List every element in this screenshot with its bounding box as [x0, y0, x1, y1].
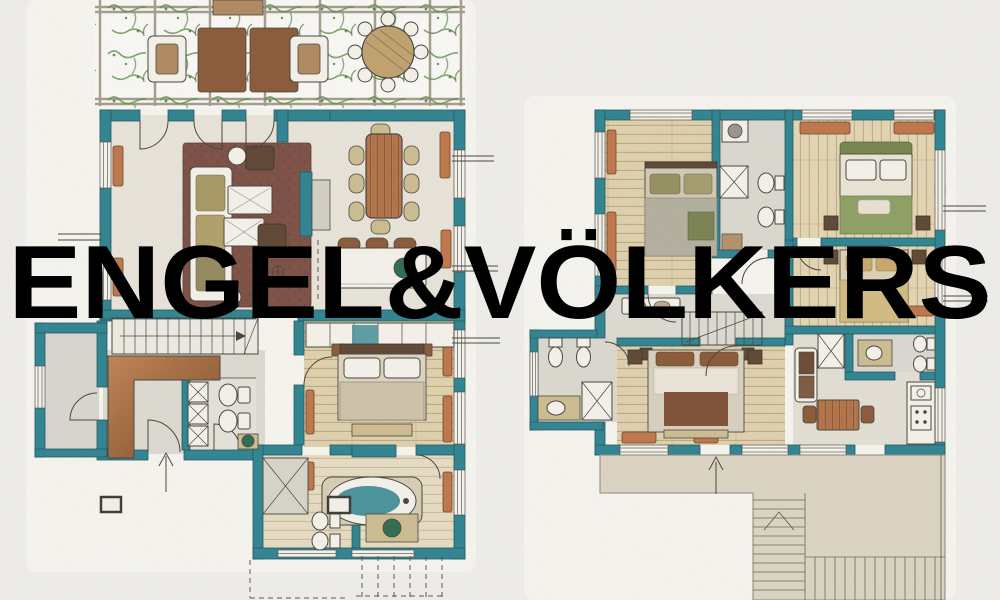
paper-texture-overlay — [0, 0, 1000, 600]
floor-plan-screenshot: ENGEL&VÖLKERS — [0, 0, 1000, 600]
floor-plan-drawing — [0, 0, 1000, 600]
